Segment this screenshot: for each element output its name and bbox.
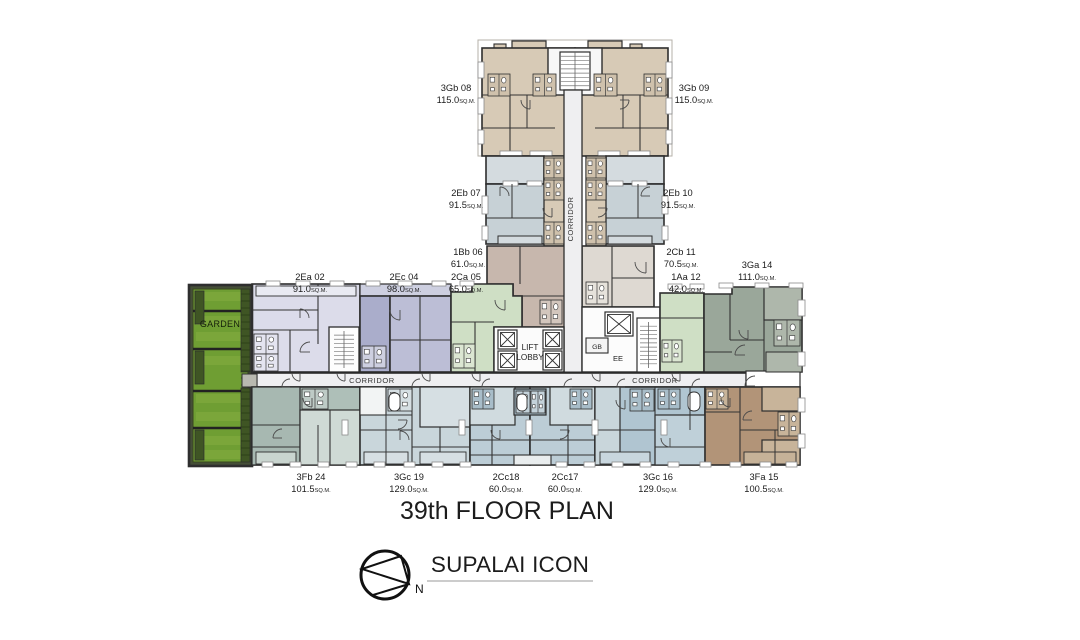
svg-text:2Ea 02: 2Ea 02 <box>295 272 324 282</box>
svg-text:2Cc17: 2Cc17 <box>552 472 579 482</box>
svg-text:EE: EE <box>613 354 623 363</box>
svg-text:3Fa 15: 3Fa 15 <box>750 472 779 482</box>
svg-text:3Fb 24: 3Fb 24 <box>297 472 326 482</box>
svg-text:CORRIDOR: CORRIDOR <box>566 197 575 242</box>
svg-text:LOBBY: LOBBY <box>516 353 544 362</box>
svg-text:2Ec 04: 2Ec 04 <box>390 272 419 282</box>
svg-text:2Cc18: 2Cc18 <box>493 472 520 482</box>
svg-text:3Gb 08: 3Gb 08 <box>441 83 472 93</box>
svg-text:GB: GB <box>592 344 602 351</box>
svg-text:3Gb 09: 3Gb 09 <box>679 83 710 93</box>
svg-text:2Eb 07: 2Eb 07 <box>451 188 480 198</box>
svg-text:CORRIDOR: CORRIDOR <box>349 376 395 385</box>
svg-text:SUPALAI ICON: SUPALAI ICON <box>431 552 589 577</box>
svg-text:GARDEN: GARDEN <box>200 319 240 329</box>
svg-text:1Aa 12: 1Aa 12 <box>671 272 700 282</box>
svg-text:2Ca 05: 2Ca 05 <box>451 272 481 282</box>
svg-text:CORRIDOR: CORRIDOR <box>632 376 678 385</box>
svg-text:3Ga 14: 3Ga 14 <box>742 260 773 270</box>
svg-text:LIFT: LIFT <box>522 343 539 352</box>
svg-text:N: N <box>415 582 424 596</box>
svg-text:2Cb 11: 2Cb 11 <box>666 247 695 257</box>
svg-text:3Gc 19: 3Gc 19 <box>394 472 424 482</box>
svg-text:39th FLOOR PLAN: 39th FLOOR PLAN <box>400 497 614 525</box>
svg-text:3Gc 16: 3Gc 16 <box>643 472 673 482</box>
svg-text:1Bb 06: 1Bb 06 <box>453 247 482 257</box>
svg-text:2Eb 10: 2Eb 10 <box>663 188 692 198</box>
